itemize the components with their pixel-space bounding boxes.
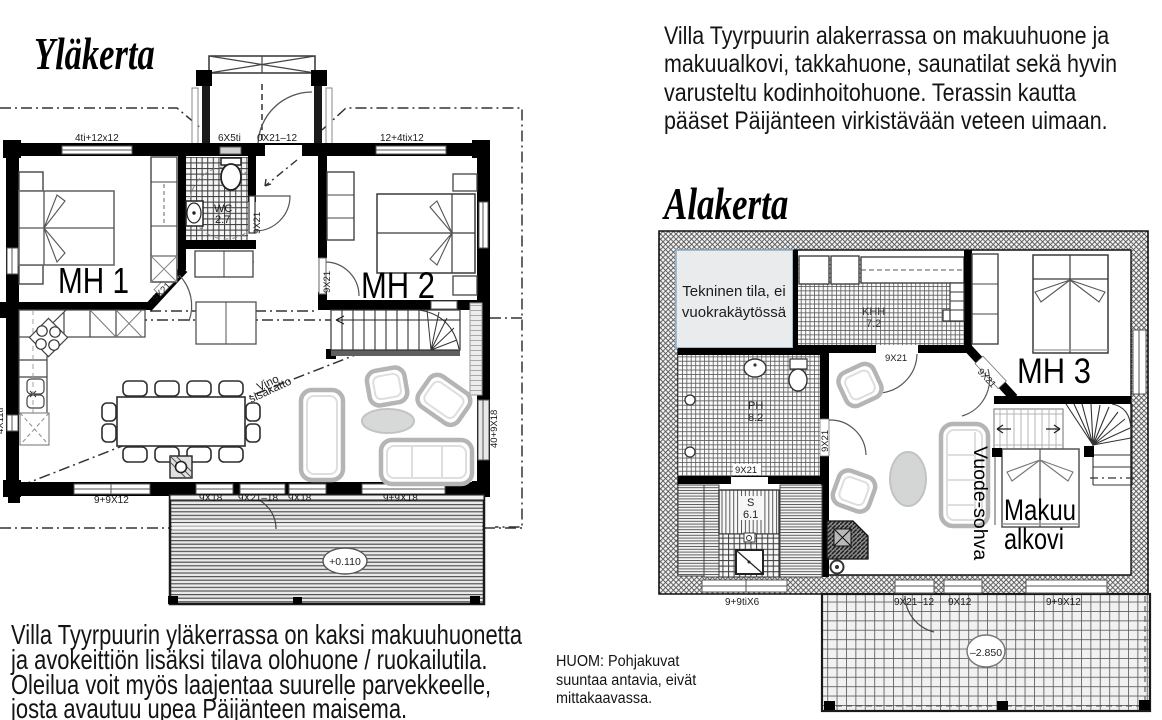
svg-text:KHH: KHH (862, 306, 885, 318)
svg-text:Tekninen tila, ei: Tekninen tila, ei (682, 283, 785, 300)
svg-text:9X21–12: 9X21–12 (894, 597, 934, 608)
svg-text:9X18: 9X18 (199, 493, 223, 504)
svg-text:8.2: 8.2 (748, 412, 763, 424)
svg-text:4ti+12x12: 4ti+12x12 (75, 133, 119, 144)
svg-text:9X21–18: 9X21–18 (238, 493, 278, 504)
svg-text:9+9tiX6: 9+9tiX6 (725, 597, 760, 608)
svg-text:–2.850: –2.850 (970, 647, 1002, 659)
svg-text:alkovi: alkovi (1004, 523, 1064, 556)
svg-text:9X21: 9X21 (322, 271, 333, 293)
svg-text:12+4tix12: 12+4tix12 (380, 133, 424, 144)
svg-text:9X21: 9X21 (735, 465, 757, 476)
svg-text:PH: PH (748, 400, 763, 412)
svg-text:9X12: 9X12 (948, 597, 972, 608)
svg-text:7.2: 7.2 (866, 318, 881, 330)
svg-text:MH 3: MH 3 (1017, 352, 1091, 391)
svg-text:9X18: 9X18 (288, 493, 312, 504)
svg-text:vuokrakäytössä: vuokrakäytössä (682, 304, 787, 321)
svg-text:9X21: 9X21 (885, 353, 907, 364)
svg-text:Vuode-sohva: Vuode-sohva (969, 446, 991, 560)
svg-text:+0.110: +0.110 (329, 556, 361, 568)
svg-text:9X21: 9X21 (252, 212, 263, 234)
svg-text:MH 1: MH 1 (58, 260, 129, 301)
svg-text:9X21: 9X21 (820, 430, 831, 452)
svg-text:6X5ti: 6X5ti (218, 133, 241, 144)
svg-text:2.7: 2.7 (215, 214, 230, 226)
svg-text:4X11ti: 4X11ti (0, 408, 6, 434)
svg-text:9+9X18: 9+9X18 (383, 493, 418, 504)
svg-text:S: S (747, 497, 754, 509)
svg-text:9+9X12: 9+9X12 (1046, 597, 1081, 608)
svg-text:0X21–12: 0X21–12 (257, 133, 297, 144)
svg-text:40+9X18: 40+9X18 (489, 410, 500, 448)
svg-text:9+9X12: 9+9X12 (94, 495, 129, 506)
svg-text:MH 2: MH 2 (361, 265, 435, 306)
svg-text:6.1: 6.1 (743, 509, 758, 521)
